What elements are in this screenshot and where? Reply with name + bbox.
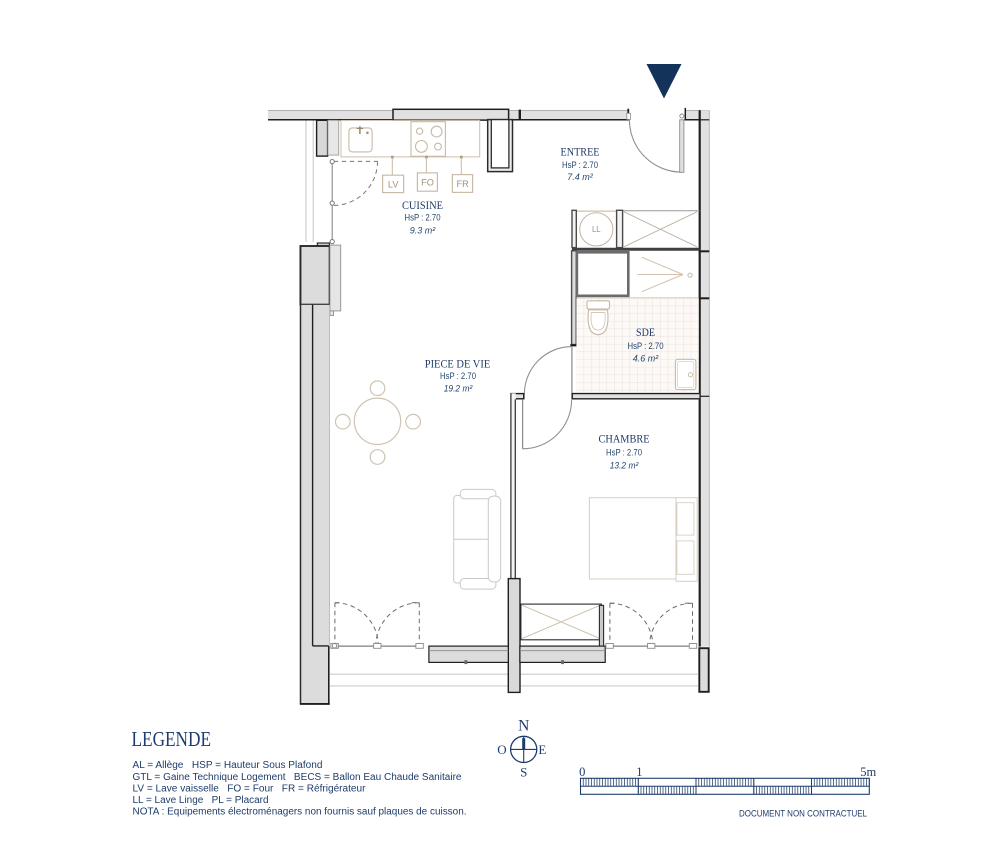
svg-text:LL = Lave Linge PL = Placard: LL = Lave Linge PL = Placard [133,795,269,806]
svg-text:LL: LL [592,225,601,234]
svg-text:LV = Lave vaisselle FO = Fou: LV = Lave vaisselle FO = Four FR = Réfri… [133,784,367,795]
svg-text:HsP : 2.70: HsP : 2.70 [405,213,441,223]
svg-text:FO: FO [421,178,434,188]
svg-text:PIECE DE VIE: PIECE DE VIE [425,358,491,370]
svg-text:ENTREE: ENTREE [561,146,600,158]
svg-text:N: N [518,718,529,735]
svg-text:GTL = Gaine Technique Logement: GTL = Gaine Technique Logement BECS = Ba… [133,772,463,783]
svg-text:9.3 m²: 9.3 m² [410,226,437,236]
svg-text:DOCUMENT NON CONTRACTUEL: DOCUMENT NON CONTRACTUEL [739,808,867,819]
svg-text:CHAMBRE: CHAMBRE [599,434,650,446]
svg-text:5m: 5m [860,765,876,779]
svg-text:7.4 m²: 7.4 m² [567,172,594,182]
svg-text:HsP : 2.70: HsP : 2.70 [440,371,476,381]
svg-text:LV: LV [388,180,399,190]
svg-text:4.6 m²: 4.6 m² [633,353,660,363]
svg-text:19.2 m²: 19.2 m² [444,383,474,393]
svg-text:0: 0 [579,765,585,779]
svg-text:LEGENDE: LEGENDE [132,727,212,751]
svg-text:S: S [520,764,527,779]
svg-text:E: E [538,742,546,757]
svg-text:SDE: SDE [636,327,655,339]
svg-text:HsP : 2.70: HsP : 2.70 [606,448,642,458]
svg-text:CUISINE: CUISINE [402,200,443,212]
svg-text:HsP : 2.70: HsP : 2.70 [562,160,598,170]
svg-text:13.2 m²: 13.2 m² [610,460,640,470]
svg-text:1: 1 [636,765,642,779]
svg-text:AL = Allège HSP = Hauteur So: AL = Allège HSP = Hauteur Sous Plafond [133,760,323,771]
svg-text:HsP : 2.70: HsP : 2.70 [628,341,664,351]
svg-text:NOTA : Equipements électroména: NOTA : Equipements électroménagers non f… [133,807,467,818]
svg-text:FR: FR [456,179,469,189]
svg-text:O: O [497,742,506,757]
